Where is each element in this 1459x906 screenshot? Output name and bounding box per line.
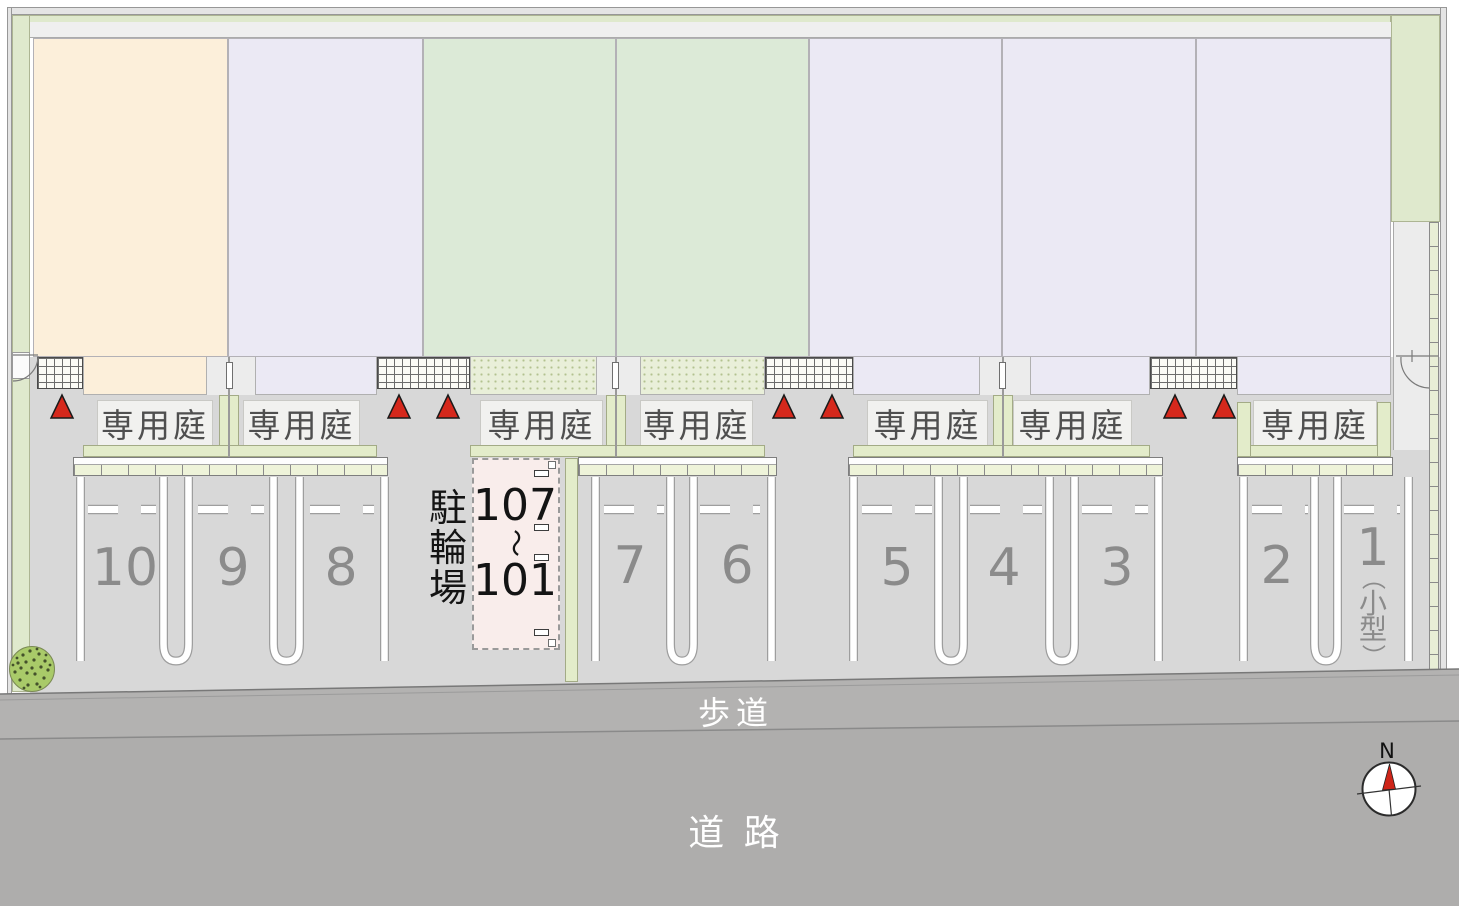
bicycle-area-corner-post [548, 461, 556, 469]
hedge-right [1391, 15, 1440, 222]
parking-curb-3 [848, 457, 1163, 476]
parking-space-number-7: 7 [613, 536, 646, 596]
bicycle-range-to: 101 [473, 558, 557, 604]
garden-strip-4 [1237, 445, 1391, 457]
private-garden-box-3: 専用庭 [480, 400, 603, 446]
gate-post-2 [612, 362, 619, 389]
compass-icon [1357, 763, 1421, 817]
parking-space-1-small-type-note: （ 小 型 ） [1359, 565, 1387, 669]
bicycle-range-from: 107 [473, 484, 557, 528]
private-garden-label: 専用庭 [101, 399, 209, 447]
private-garden-label: 専用庭 [248, 399, 356, 447]
private-garden-label: 専用庭 [874, 399, 982, 447]
entrance-tile-hatch-3 [765, 357, 853, 389]
bicycle-range-tilde: 〜 [500, 529, 530, 557]
building-unit-1 [33, 38, 228, 357]
porch-unit-5 [853, 357, 980, 395]
garden-strip-2 [470, 445, 765, 457]
parking-curb-2 [578, 457, 777, 476]
private-garden-label: 専用庭 [1261, 399, 1369, 447]
site-plan: 専用庭 専用庭 専用庭 専用庭 専用庭 専用庭 専用庭 [0, 0, 1459, 906]
parking-space-number-6: 6 [720, 536, 753, 596]
private-garden-label: 専用庭 [488, 399, 596, 447]
parking-curb-4 [1237, 457, 1393, 476]
bicycle-parking-label: 駐 輪 場 [428, 488, 468, 608]
building-unit-3 [423, 38, 616, 357]
private-garden-box-4: 専用庭 [640, 400, 753, 446]
sidewalk-label: 歩道 [698, 688, 774, 734]
terrace-unit-3 [470, 357, 597, 395]
porch-unit-1 [83, 357, 207, 395]
side-corridor-right [1393, 222, 1429, 450]
parking-curb-1 [73, 457, 388, 476]
terrace-unit-4 [640, 357, 765, 395]
private-garden-box-6: 専用庭 [1013, 400, 1132, 446]
parking-space-number-5: 5 [880, 538, 913, 598]
parking-space-number-4: 4 [987, 538, 1020, 598]
bicycle-number-range: 107 〜 101 [477, 484, 553, 604]
garden-strip-7-right [1377, 402, 1391, 457]
gate-post-3 [999, 362, 1006, 389]
bicycle-rack-icon [534, 470, 549, 477]
parking-space-number-2: 2 [1260, 536, 1293, 596]
private-garden-label: 専用庭 [643, 399, 751, 447]
bicycle-rack-icon [534, 629, 549, 636]
compass-north-label: N [1379, 739, 1395, 763]
road-label: 道 路 [688, 804, 783, 856]
private-garden-box-7: 専用庭 [1253, 400, 1377, 446]
building-unit-7 [1196, 38, 1391, 357]
private-garden-box-5: 専用庭 [867, 400, 988, 446]
entrance-tile-hatch-4 [1150, 357, 1237, 389]
building-unit-4 [616, 38, 809, 357]
entrance-tile-hatch-1 [37, 357, 83, 389]
parking-space-number-9: 9 [216, 538, 249, 598]
bicycle-area-corner-post [548, 639, 556, 647]
parking-space-number-10: 10 [92, 538, 158, 598]
porch-unit-6 [1030, 357, 1150, 395]
fence-right [1429, 222, 1439, 678]
parking-space-number-8: 8 [324, 538, 357, 598]
rear-walkway [30, 22, 1391, 38]
private-garden-box-1: 専用庭 [97, 400, 213, 446]
parking-space-number-3: 3 [1100, 538, 1133, 598]
private-garden-label: 専用庭 [1019, 399, 1127, 447]
boundary-wall-right [1440, 7, 1447, 680]
garden-strip-7-left [1237, 402, 1251, 457]
building-unit-2 [228, 38, 423, 357]
gate-left-opening [12, 352, 30, 379]
planting-strip-center [565, 458, 578, 682]
porch-unit-7 [1237, 357, 1391, 395]
gate-post-1 [226, 362, 233, 389]
building-unit-6 [1002, 38, 1196, 357]
entrance-tile-hatch-2 [377, 357, 470, 389]
boundary-wall-top [7, 7, 1447, 15]
garden-strip-1 [83, 445, 377, 457]
private-garden-box-2: 専用庭 [243, 400, 360, 446]
building-unit-5 [809, 38, 1002, 357]
porch-unit-2 [255, 357, 377, 395]
